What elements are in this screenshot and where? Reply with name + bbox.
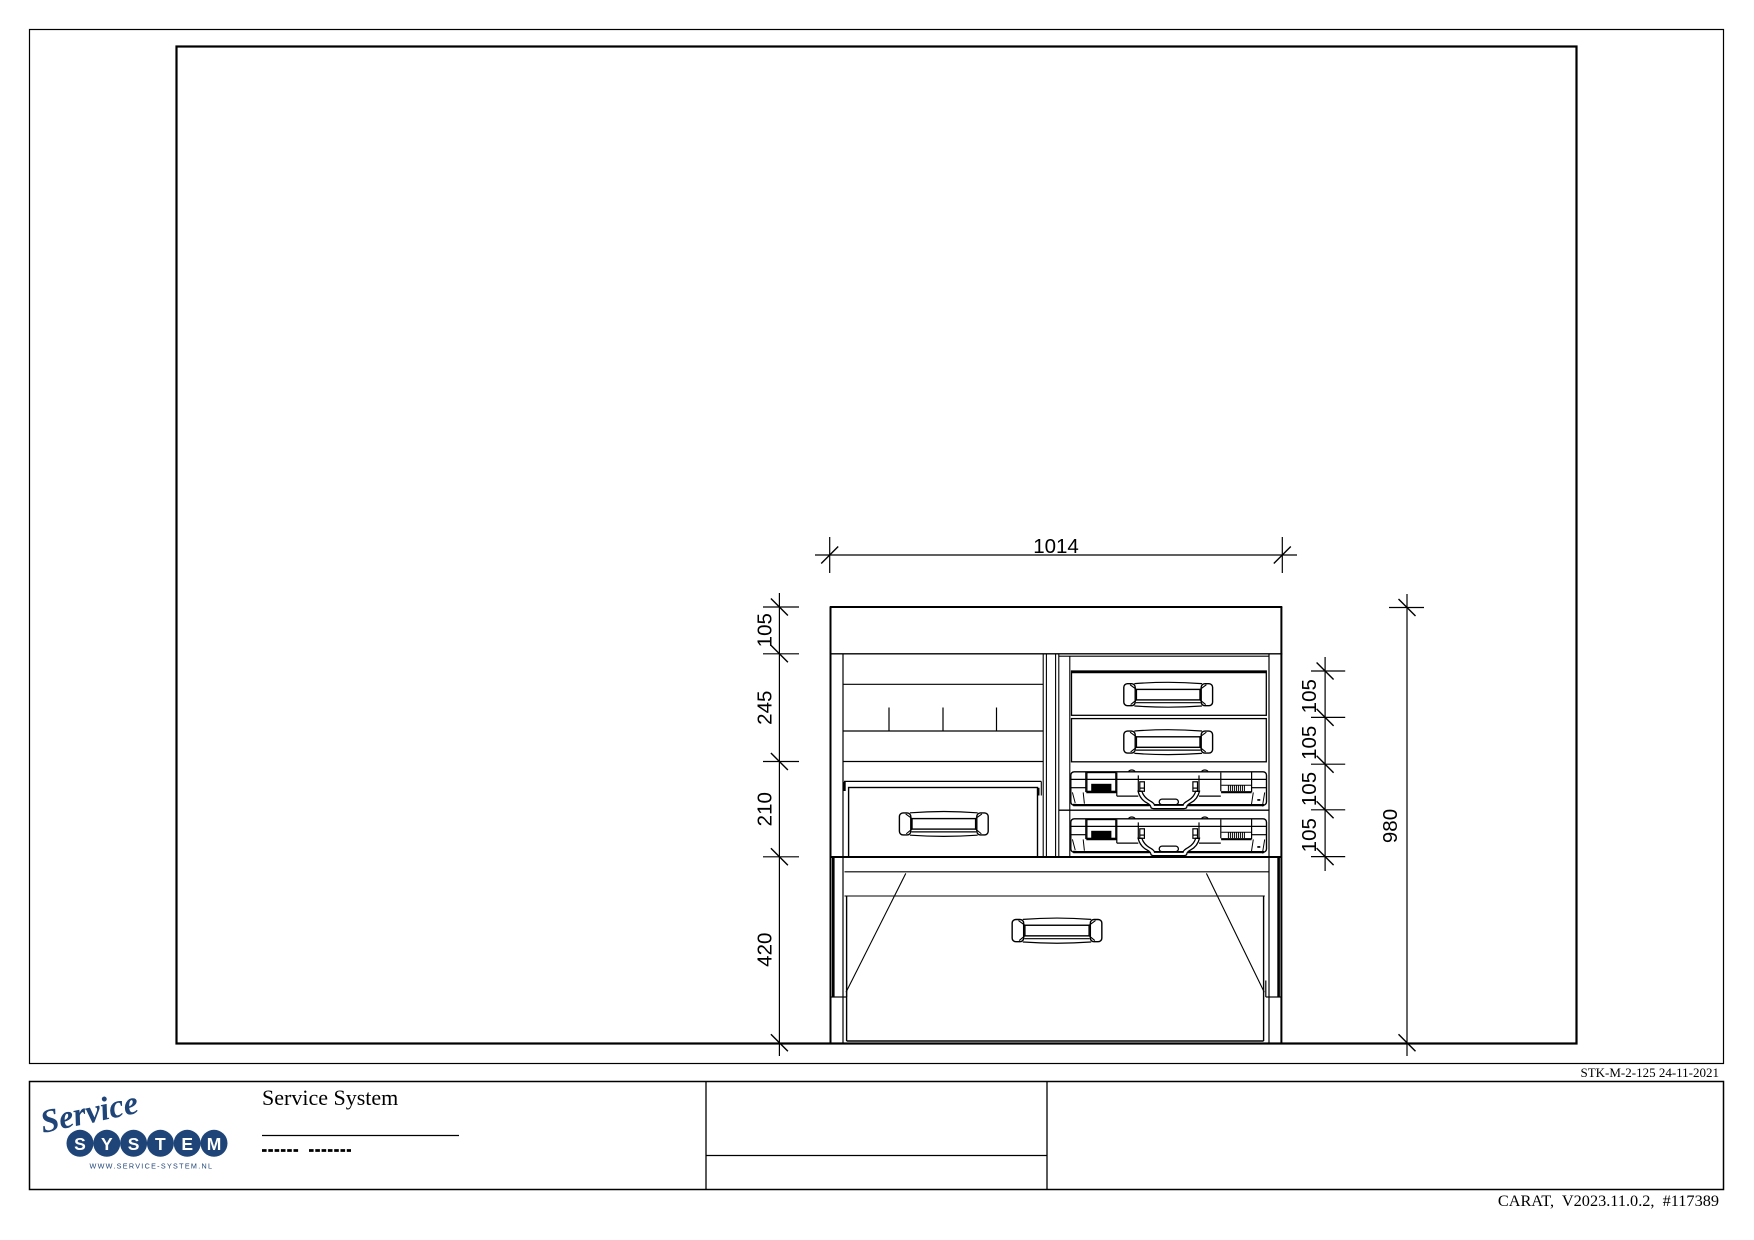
svg-text:Service System: Service System bbox=[262, 1085, 398, 1110]
svg-text:Y: Y bbox=[101, 1134, 113, 1154]
svg-text:STK-M-2-125 24-11-2021: STK-M-2-125 24-11-2021 bbox=[1580, 1065, 1719, 1080]
svg-text:420: 420 bbox=[753, 933, 776, 967]
svg-text:210: 210 bbox=[753, 792, 776, 826]
svg-text:105: 105 bbox=[1298, 726, 1321, 760]
svg-text:T: T bbox=[155, 1134, 166, 1154]
svg-text:105: 105 bbox=[1298, 772, 1321, 806]
svg-text:980: 980 bbox=[1379, 809, 1402, 843]
svg-text:105: 105 bbox=[1298, 818, 1321, 852]
svg-text:WWW.SERVICE-SYSTEM.NL: WWW.SERVICE-SYSTEM.NL bbox=[90, 1162, 214, 1171]
svg-text:245: 245 bbox=[753, 691, 776, 725]
svg-text:S: S bbox=[74, 1134, 86, 1154]
svg-text:CARAT, V2023.11.0.2, #117389: CARAT, V2023.11.0.2, #117389 bbox=[1498, 1191, 1719, 1210]
svg-text:105: 105 bbox=[1298, 679, 1321, 713]
svg-text:S: S bbox=[128, 1134, 140, 1154]
svg-text:105: 105 bbox=[753, 613, 776, 647]
svg-text:E: E bbox=[181, 1134, 193, 1154]
svg-text:M: M bbox=[207, 1134, 222, 1154]
svg-text:1014: 1014 bbox=[1033, 535, 1079, 558]
